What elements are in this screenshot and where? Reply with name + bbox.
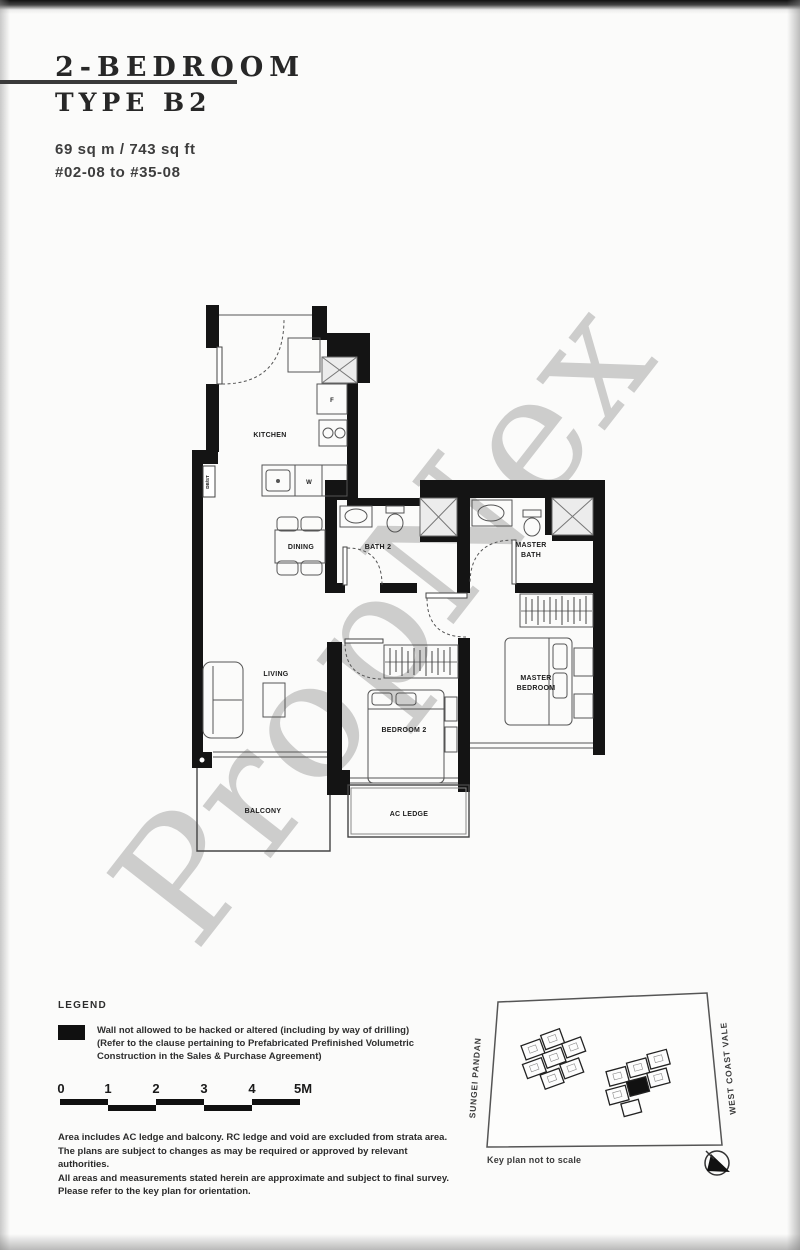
title-divider	[0, 80, 237, 84]
bath2-label: BATH 2	[365, 544, 392, 551]
road-label-west-coast-vale: WEST COAST VALE	[718, 1022, 738, 1116]
scale-0: 0	[57, 1081, 64, 1096]
legend: LEGEND Wall not allowed to be hacked or …	[58, 1000, 458, 1063]
scale-bar-segments	[60, 1099, 300, 1111]
scale-bar: 0 1 2 3 4 5M	[45, 1075, 335, 1120]
photo-edge-left	[0, 0, 10, 1250]
disclaimer-line-1: Area includes AC ledge and balcony. RC l…	[58, 1131, 458, 1145]
photo-edge-top	[0, 0, 800, 14]
db-st-label: DB/ST	[205, 475, 210, 489]
bedroom2-label: BEDROOM 2	[381, 727, 426, 734]
page-title: 2-BEDROOM	[55, 52, 305, 83]
scale-5m: 5M	[294, 1081, 312, 1096]
legend-heading: LEGEND	[58, 1000, 458, 1011]
unit-stack-range: #02-08 to #35-08	[55, 164, 181, 181]
balcony-label: BALCONY	[245, 808, 282, 815]
scale-3: 3	[200, 1081, 207, 1096]
master-bedroom-label-1: MASTER	[520, 675, 551, 682]
photo-edge-right	[787, 0, 800, 1250]
site-boundary	[487, 993, 722, 1147]
floor-plan: KITCHEN DINING BATH 2 MASTER BATH LIVING…	[190, 295, 615, 865]
photo-edge-bottom	[0, 1234, 800, 1250]
north-arrow-icon	[705, 1151, 730, 1175]
key-plan-note: Key plan not to scale	[487, 1155, 581, 1165]
ppvc-wall-swatch	[58, 1025, 85, 1040]
floorplan-brochure-page: { "header": { "title_line1": "2-BEDROOM"…	[0, 0, 800, 1250]
living-label: LIVING	[263, 671, 288, 678]
scale-4: 4	[248, 1081, 256, 1096]
legend-line-2: (Refer to the clause pertaining to Prefa…	[97, 1037, 414, 1050]
washer-label: W	[306, 480, 312, 486]
legend-line-3: Construction in the Sales & Purchase Agr…	[97, 1050, 414, 1063]
disclaimer-line-3: All areas and measurements stated herein…	[58, 1172, 458, 1186]
kitchen-label: KITCHEN	[253, 432, 286, 439]
room-labels: KITCHEN DINING BATH 2 MASTER BATH LIVING…	[205, 398, 555, 818]
kitchen-shaft	[322, 357, 357, 383]
ac-ledge-label: AC LEDGE	[390, 811, 429, 818]
road-label-sungei-pandan: SUNGEI PANDAN	[467, 1037, 483, 1119]
unit-area: 69 sq m / 743 sq ft	[55, 141, 196, 158]
master-bedroom-label-2: BEDROOM	[517, 685, 556, 692]
structural-walls	[192, 305, 605, 795]
bedroom2-wardrobe	[384, 645, 458, 678]
legend-line-1: Wall not allowed to be hacked or altered…	[97, 1024, 414, 1037]
bedroom2-bed	[368, 690, 457, 783]
coffee-table	[263, 683, 285, 717]
fridge-label: F	[330, 398, 334, 404]
scale-2: 2	[152, 1081, 159, 1096]
unit-type: TYPE B2	[55, 88, 212, 117]
master-bath-label-2: BATH	[521, 552, 541, 559]
key-plan: SUNGEI PANDAN WEST COAST VALE Key plan n…	[450, 975, 760, 1190]
disclaimer-line-4: Please refer to the key plan for orienta…	[58, 1185, 458, 1199]
disclaimer: Area includes AC ledge and balcony. RC l…	[58, 1131, 458, 1199]
scale-1: 1	[104, 1081, 111, 1096]
sofa	[203, 662, 243, 738]
dining-label: DINING	[288, 544, 315, 551]
disclaimer-line-2: The plans are subject to changes as may …	[58, 1145, 458, 1172]
master-wardrobe	[520, 594, 593, 627]
master-bath-label-1: MASTER	[515, 542, 546, 549]
